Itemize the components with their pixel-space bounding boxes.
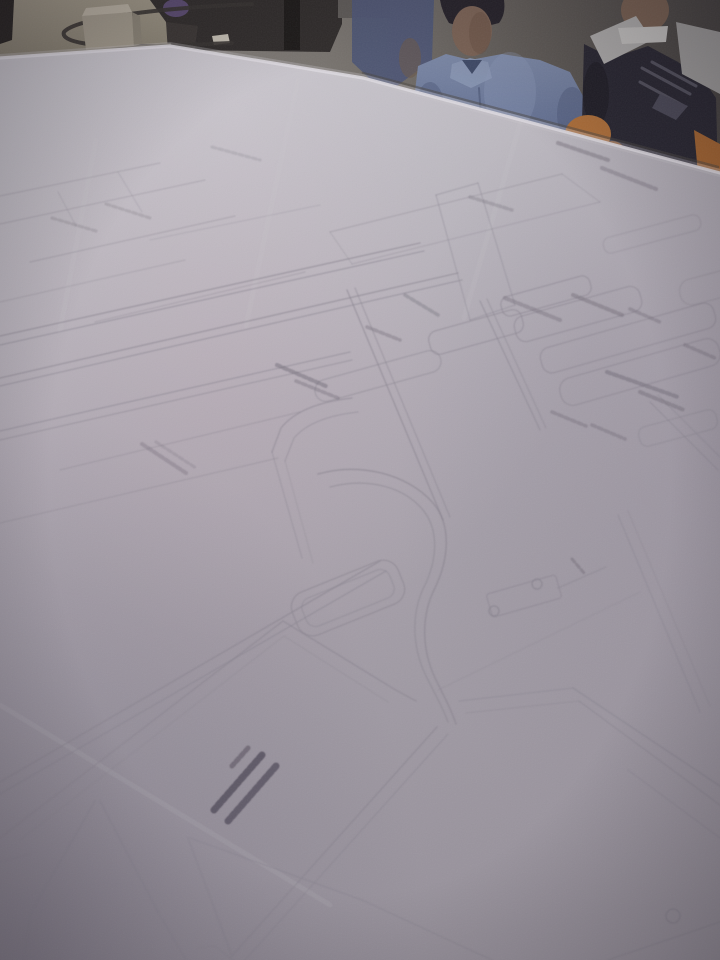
photo-stage bbox=[0, 0, 720, 960]
vignette-overlay bbox=[0, 0, 720, 960]
pattern-table-photo bbox=[0, 0, 720, 960]
